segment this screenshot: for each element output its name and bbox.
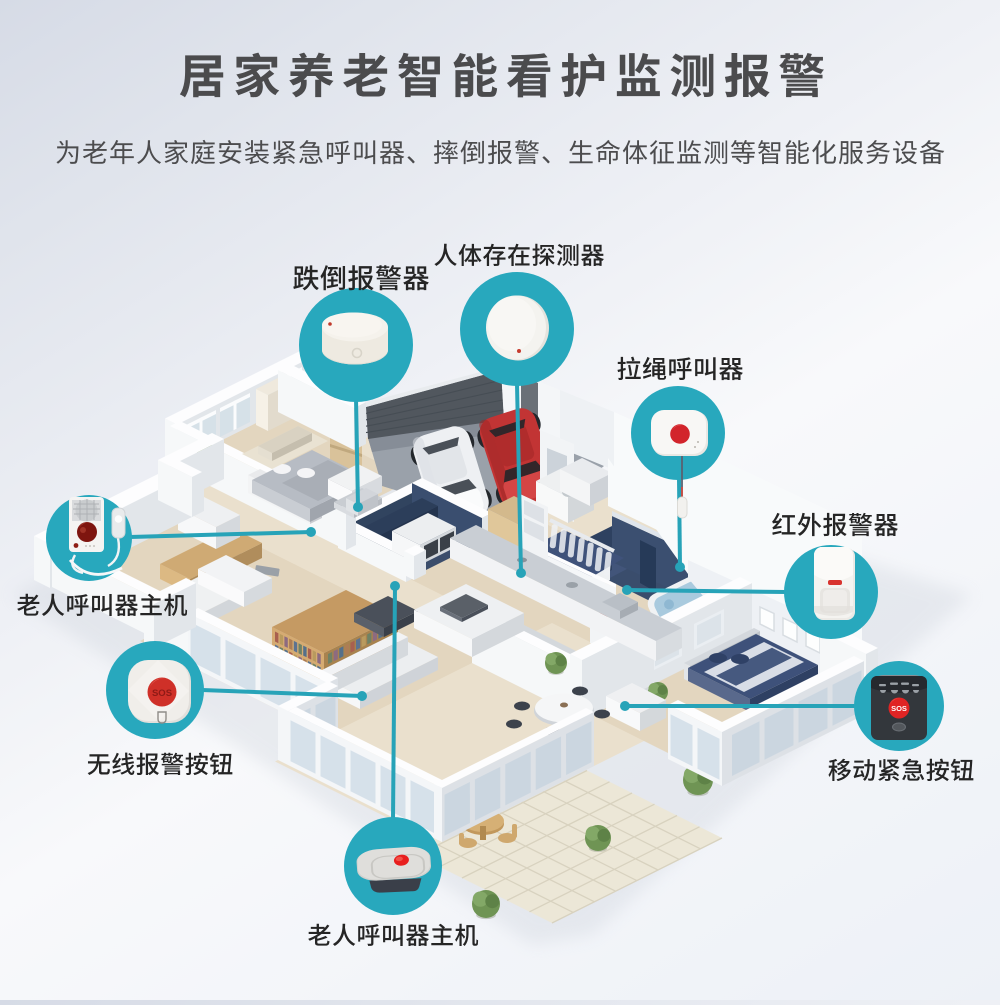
svg-text:SOS: SOS <box>891 704 907 713</box>
svg-text:SOS: SOS <box>152 688 172 699</box>
